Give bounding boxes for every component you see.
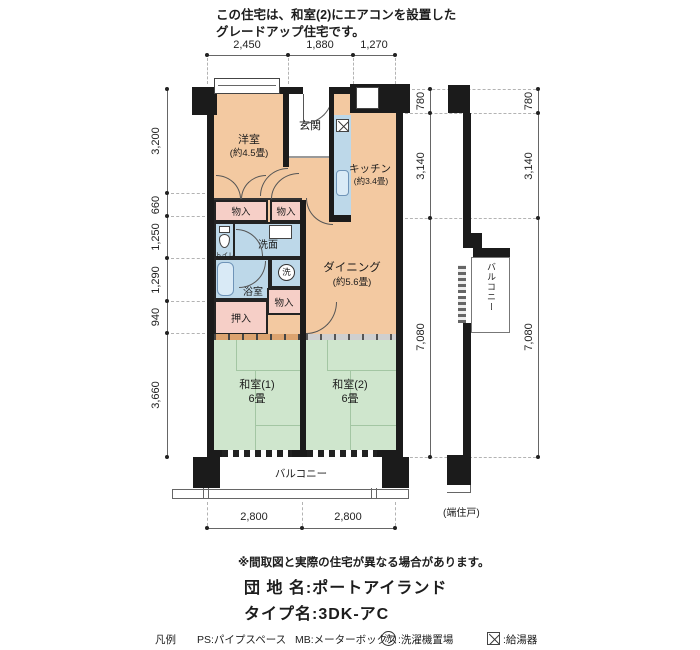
dim-right-inner-2: 3,140 xyxy=(414,141,428,191)
side-window-band xyxy=(458,265,466,293)
side-wall xyxy=(463,113,471,235)
dim-right-outer-3: 7,080 xyxy=(522,312,536,362)
side-outline xyxy=(470,485,471,493)
extension-line xyxy=(171,333,205,334)
tatami-line xyxy=(236,370,300,371)
tick xyxy=(165,299,169,303)
extension-line xyxy=(302,502,303,526)
extension-line xyxy=(288,58,289,84)
legend-ps: PS:パイプスペース xyxy=(197,632,286,647)
wall xyxy=(396,87,403,457)
room-label-monoire-2: 物入 xyxy=(271,204,301,218)
balcony-rail-end xyxy=(172,489,173,499)
tick xyxy=(536,455,540,459)
extension-line xyxy=(395,502,396,526)
tatami-line xyxy=(236,340,237,370)
extension-line xyxy=(207,502,208,526)
tick xyxy=(428,87,432,91)
tatami-line xyxy=(327,340,328,370)
type-name: タイプ名:3DK-アC xyxy=(244,600,389,624)
extension-line xyxy=(353,58,354,84)
tick xyxy=(165,256,169,260)
dimension-line-right-inner xyxy=(430,89,431,457)
dim-bottom-2: 2,800 xyxy=(323,510,373,524)
dim-left-5: 940 xyxy=(149,292,163,342)
balcony-support xyxy=(371,488,372,498)
window xyxy=(214,78,280,94)
room-label-kitchen: キッチン xyxy=(344,161,396,176)
tick xyxy=(165,455,169,459)
tick xyxy=(428,111,432,115)
balcony-rail-end xyxy=(408,489,409,499)
meter-box xyxy=(356,87,379,109)
dim-bottom-1: 2,800 xyxy=(229,510,279,524)
tatami-line xyxy=(350,425,396,426)
extension-line xyxy=(207,58,208,84)
side-wall-step xyxy=(463,233,482,248)
tick xyxy=(165,87,169,91)
end-unit-note: (端住戸) xyxy=(443,504,480,519)
dim-right-outer-1: 780 xyxy=(522,76,536,126)
legend-laundry-text: :洗濯機置場 xyxy=(398,632,453,647)
dimension-line-left xyxy=(167,89,168,457)
side-wall-bar xyxy=(473,248,510,257)
dim-right-outer-2: 3,140 xyxy=(522,141,536,191)
tick xyxy=(165,214,169,218)
room-size-washitsu-1: 6畳 xyxy=(237,390,277,406)
tick xyxy=(165,191,169,195)
tick xyxy=(205,526,209,530)
tick xyxy=(428,216,432,220)
dimension-line-right-outer xyxy=(538,89,539,457)
genkan-step xyxy=(289,156,330,158)
tick xyxy=(536,216,540,220)
dimension-line-top xyxy=(207,55,395,56)
tatami-line xyxy=(327,370,396,371)
tick xyxy=(428,455,432,459)
extension-line xyxy=(171,193,205,194)
toilet-tank-icon xyxy=(219,226,230,233)
tick xyxy=(205,53,209,57)
window-inner-line xyxy=(218,85,276,86)
room-size-yoshitsu: (約4.5畳) xyxy=(211,145,287,159)
balcony-pillar xyxy=(193,457,220,488)
dim-right-inner-1: 780 xyxy=(414,76,428,126)
tick xyxy=(536,87,540,91)
tick xyxy=(393,526,397,530)
dim-top-3: 1,270 xyxy=(349,38,399,52)
side-window-band xyxy=(458,296,466,323)
tick xyxy=(393,53,397,57)
legend-heater-icon xyxy=(487,632,500,645)
tick xyxy=(165,331,169,335)
side-wall-block xyxy=(448,85,470,113)
tick xyxy=(300,526,304,530)
extension-line xyxy=(171,258,205,259)
tick xyxy=(351,53,355,57)
room-label-balcony-bottom: バルコニー xyxy=(266,466,336,481)
side-outline xyxy=(447,492,471,493)
dim-right-inner-3: 7,080 xyxy=(414,312,428,362)
dim-top-1: 2,450 xyxy=(222,38,272,52)
balcony-pillar xyxy=(382,457,409,488)
balcony-support xyxy=(208,488,209,498)
tick xyxy=(536,111,540,115)
room-label-balcony-side: バルコニー xyxy=(485,262,498,332)
balcony-support xyxy=(376,488,377,498)
balcony-support xyxy=(203,488,204,498)
legend-heater-text: :給湯器 xyxy=(503,632,537,647)
room-size-washitsu-2: 6畳 xyxy=(330,390,370,406)
wall xyxy=(207,87,214,457)
dim-top-2: 1,880 xyxy=(295,38,345,52)
room-label-dining: ダイニング xyxy=(316,259,388,275)
tick xyxy=(286,53,290,57)
laundry-icon: 洗 xyxy=(278,264,295,281)
room-size-dining: (約5.6畳) xyxy=(318,274,386,288)
extension-line xyxy=(171,216,205,217)
balcony-rail-line xyxy=(172,498,409,499)
legend-laundry-icon: 洗 xyxy=(381,631,396,646)
room-label-monoire-3: 物入 xyxy=(269,295,299,309)
side-wall-block xyxy=(447,455,471,485)
tatami-line xyxy=(255,425,300,426)
floor-plan-canvas: この住宅は、和室(2)にエアコンを設置した グレードアップ住宅です。 2,450… xyxy=(0,0,700,650)
dim-left-1: 3,200 xyxy=(149,116,163,166)
room-size-kitchen: (約3.4畳) xyxy=(346,175,396,187)
window-band xyxy=(222,450,292,457)
disclaimer-note: ※間取図と実際の住宅が異なる場合があります。 xyxy=(238,554,490,570)
room-label-oshiire: 押入 xyxy=(220,310,262,325)
dim-left-6: 3,660 xyxy=(149,370,163,420)
wall xyxy=(300,335,306,450)
bathtub-icon xyxy=(217,262,234,296)
legend-title: 凡例 xyxy=(155,632,176,647)
danchi-name: 団 地 名:ポートアイランド xyxy=(244,574,447,598)
water-heater-icon xyxy=(336,119,349,132)
side-wall xyxy=(463,323,471,455)
window-band xyxy=(307,450,377,457)
room-label-monoire-1: 物入 xyxy=(218,204,264,218)
extension-line xyxy=(171,301,205,302)
extension-line xyxy=(395,58,396,84)
